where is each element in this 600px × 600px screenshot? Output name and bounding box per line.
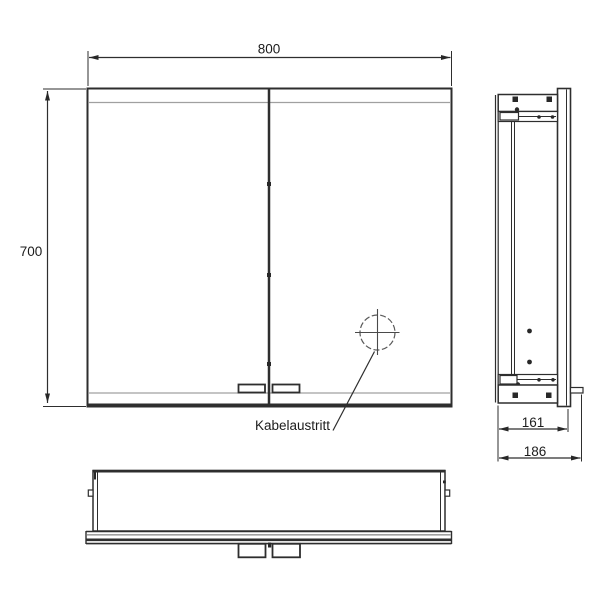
- dimension-width: 800: [88, 42, 452, 87]
- door-handle-left: [239, 385, 266, 393]
- cabinet-bottom-outline: [93, 471, 445, 532]
- handle-divider-mark: [268, 543, 271, 548]
- hinge-mark: [267, 273, 271, 277]
- technical-drawing-canvas: Kabelaustritt 800 700: [0, 0, 600, 600]
- bottom-flange: [571, 388, 584, 394]
- hinge-mark: [267, 362, 271, 366]
- front-view: [88, 89, 452, 407]
- handle-profile-left: [239, 544, 266, 558]
- dimension-height-label: 700: [20, 244, 43, 259]
- wall-tab-left: [88, 490, 93, 496]
- screw-top-right: [547, 97, 553, 103]
- arrowhead-left-icon: [89, 55, 99, 60]
- shelf-pin-dot: [527, 360, 532, 365]
- rivet-dot: [551, 115, 555, 119]
- rivet-dot: [551, 378, 555, 382]
- arrowhead-left-icon: [499, 456, 509, 461]
- screw-bottom-left: [513, 393, 519, 399]
- hinge-mark: [267, 182, 271, 186]
- shelf-pin-dot: [527, 329, 532, 334]
- bottom-rail-bracket: [500, 376, 517, 385]
- fastener-dot: [515, 107, 519, 111]
- cable-outlet-label: Kabelaustritt: [255, 418, 330, 433]
- corner-fitting-mark: [443, 481, 446, 484]
- dimension-height: 700: [20, 89, 86, 407]
- side-view: [496, 89, 584, 407]
- rivet-dot: [537, 378, 541, 382]
- mirror-cabinet-drawing: Kabelaustritt 800 700: [0, 0, 600, 600]
- handle-profile-right: [273, 544, 301, 558]
- wall-tab-right: [445, 490, 450, 496]
- rivet-dot: [537, 115, 541, 119]
- top-rail-bracket: [500, 113, 519, 121]
- arrowhead-down-icon: [45, 394, 50, 404]
- screw-bottom-right: [546, 393, 552, 399]
- arrowhead-up-icon: [45, 91, 50, 101]
- door-handle-right: [273, 385, 300, 393]
- arrowhead-right-icon: [571, 456, 581, 461]
- dimension-depth-total-label: 186: [524, 444, 547, 459]
- arrowhead-left-icon: [499, 427, 509, 432]
- screw-top-left: [513, 97, 519, 103]
- arrowhead-right-icon: [558, 427, 568, 432]
- mirror-door-profile: [558, 89, 571, 407]
- corner-fitting-mark: [94, 473, 96, 480]
- arrowhead-right-icon: [441, 55, 451, 60]
- bottom-view: [86, 471, 452, 558]
- dimension-width-label: 800: [258, 42, 281, 57]
- dimension-depth-body-label: 161: [522, 415, 545, 430]
